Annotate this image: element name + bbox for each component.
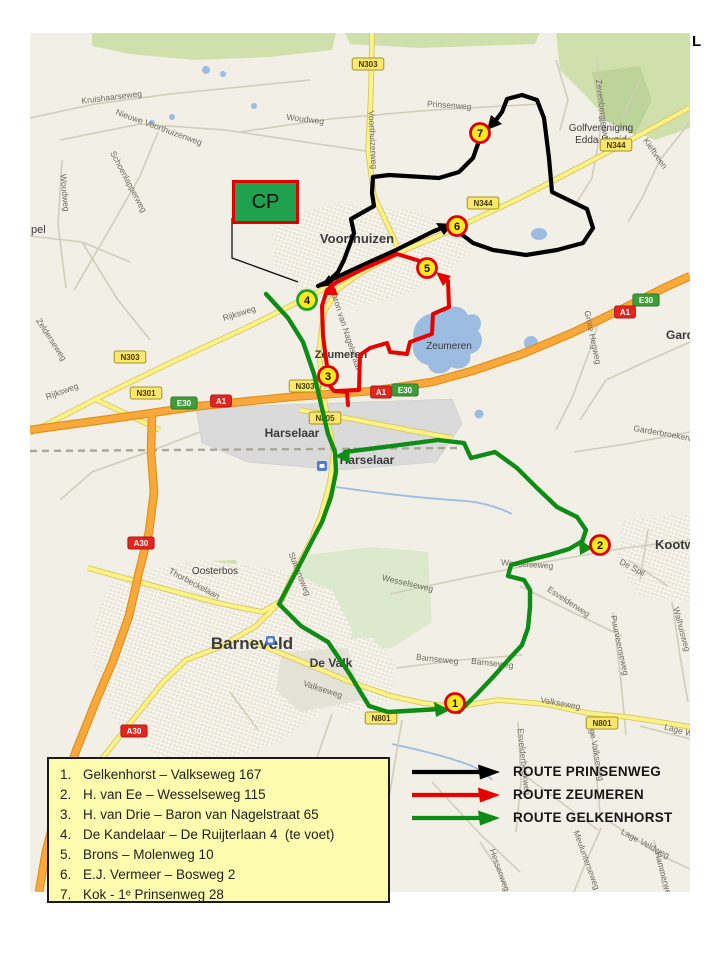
svg-text:7: 7 [477,128,483,140]
road-shield-N801: N801 [586,717,618,729]
svg-text:E30: E30 [398,386,413,395]
road-shield-A1: A1 [211,395,232,407]
svg-text:E30: E30 [177,399,192,408]
svg-text:A30: A30 [127,727,142,736]
road-shield-N344: N344 [600,139,632,151]
map-marker-6: 6 [448,217,467,236]
road-shield-N301: N301 [130,387,162,399]
road-shield-E30: E30 [171,397,197,409]
road-shield-E30: E30 [392,384,418,396]
route-legend-label: ROUTE GELKENHORST [513,810,673,825]
legend-item: 1.Gelkenhorst – Valkseweg 167 [49,764,388,784]
svg-text:A30: A30 [134,539,149,548]
legend-item-number: 5. [60,847,83,862]
legend-item: 4.De Kandelaar – De Ruijterlaan 4 (te vo… [49,824,388,844]
town-label: Zeumeren [426,341,472,352]
road-shield-E30: E30 [633,294,659,306]
map-marker-4: 4 [298,291,317,310]
map-slide: KruishaarsewegNieuwe VoorthuizenwegWoudw… [0,0,720,960]
legend-item-label: De Kandelaar – De Ruijterlaan 4 (te voet… [83,827,334,842]
legend-item-label: Kok - 1ᵉ Prinsenweg 28 [83,887,224,902]
corner-mark: L [692,33,701,50]
town-label: Harselaar [265,426,320,440]
svg-text:N344: N344 [606,141,626,150]
svg-text:4: 4 [304,295,311,307]
town-label: Kootwijkerbroek [655,537,720,552]
legend-item-label: E.J. Vermeer – Bosweg 2 [83,867,235,882]
legend-item-number: 6. [60,867,83,882]
town-label: Voorthuizen [320,231,394,246]
svg-text:N303: N303 [120,353,140,362]
road-shield-A30: A30 [121,725,147,737]
map-marker-7: 7 [471,124,490,143]
town-label: Oosterbos [192,566,238,577]
road-shield-A30: A30 [128,537,154,549]
town-label: pel [31,224,46,236]
route-legend-item-prinsenweg: ROUTE PRINSENWEG [410,760,673,783]
legend-item-number: 7. [60,887,83,902]
road-shield-N303: N303 [352,58,384,70]
route-legend-label: ROUTE PRINSENWEG [513,764,661,779]
legend-item: 3.H. van Drie – Baron van Nagelstraat 65 [49,804,388,824]
svg-text:N801: N801 [592,719,612,728]
legend-item-number: 4. [60,827,83,842]
town-label: Barneveld [211,634,293,653]
svg-text:A1: A1 [620,308,631,317]
legend-item: 6.E.J. Vermeer – Bosweg 2 [49,864,388,884]
road-shield-N344: N344 [467,197,499,209]
route-legend-item-zeumeren: ROUTE ZEUMEREN [410,783,673,806]
svg-text:N344: N344 [473,199,493,208]
svg-text:6: 6 [454,221,460,233]
route-legend: ROUTE PRINSENWEGROUTE ZEUMERENROUTE GELK… [410,760,673,829]
road-shield-A1: A1 [615,306,636,318]
legend-item-number: 2. [60,787,83,802]
cp-label: CP [252,191,280,214]
svg-text:N301: N301 [136,389,156,398]
road-shield-N303: N303 [114,351,146,363]
legend-item-number: 1. [60,767,83,782]
route-legend-label: ROUTE ZEUMEREN [513,787,644,802]
svg-text:N801: N801 [371,714,391,723]
map-marker-3: 3 [319,367,338,386]
route-legend-item-gelkenhorst: ROUTE GELKENHORST [410,806,673,829]
route-arrow-icon [410,763,502,781]
cp-box: CP [232,180,299,224]
svg-text:E30: E30 [639,296,654,305]
svg-text:1: 1 [452,698,458,710]
legend-item: 2.H. van Ee – Wesselseweg 115 [49,784,388,804]
svg-text:N303: N303 [295,382,315,391]
svg-text:A1: A1 [216,397,227,406]
route-arrow-icon [410,809,502,827]
svg-text:N303: N303 [358,60,378,69]
legend-item: 7.Kok - 1ᵉ Prinsenweg 28 [49,884,388,904]
legend-item-label: H. van Drie – Baron van Nagelstraat 65 [83,807,319,822]
route-arrow-icon [410,786,502,804]
svg-text:5: 5 [424,263,430,275]
svg-text:2: 2 [597,540,603,552]
legend-item: 5.Brons – Molenweg 10 [49,844,388,864]
legend-item-label: H. van Ee – Wesselseweg 115 [83,787,266,802]
legend-item-number: 3. [60,807,83,822]
map-marker-2: 2 [591,536,610,555]
site-legend: 1.Gelkenhorst – Valkseweg 1672.H. van Ee… [47,757,390,903]
legend-item-label: Brons – Molenweg 10 [83,847,214,862]
map-marker-1: 1 [446,694,465,713]
svg-text:3: 3 [325,371,331,383]
road-shield-A1: A1 [371,386,392,398]
town-label: Golfvereniging [569,123,633,134]
map-marker-5: 5 [418,259,437,278]
legend-item-label: Gelkenhorst – Valkseweg 167 [83,767,261,782]
town-label: Garderen [666,328,719,342]
svg-text:A1: A1 [376,388,387,397]
